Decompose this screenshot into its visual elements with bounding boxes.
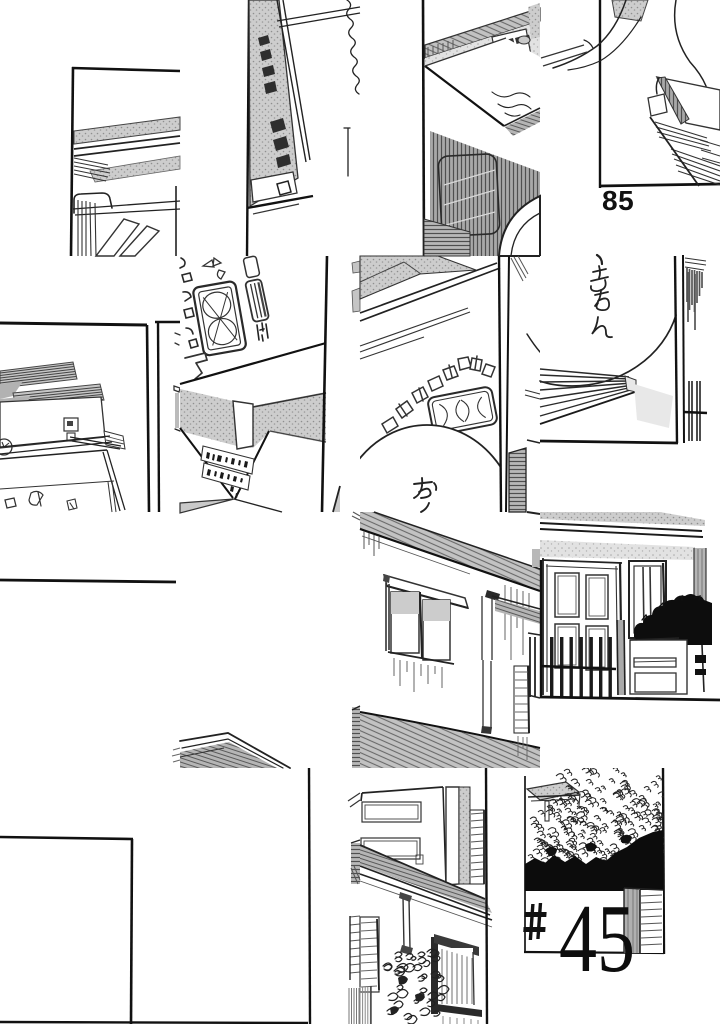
svg-text:45: 45 xyxy=(559,885,635,993)
svg-text:85: 85 xyxy=(602,185,634,216)
